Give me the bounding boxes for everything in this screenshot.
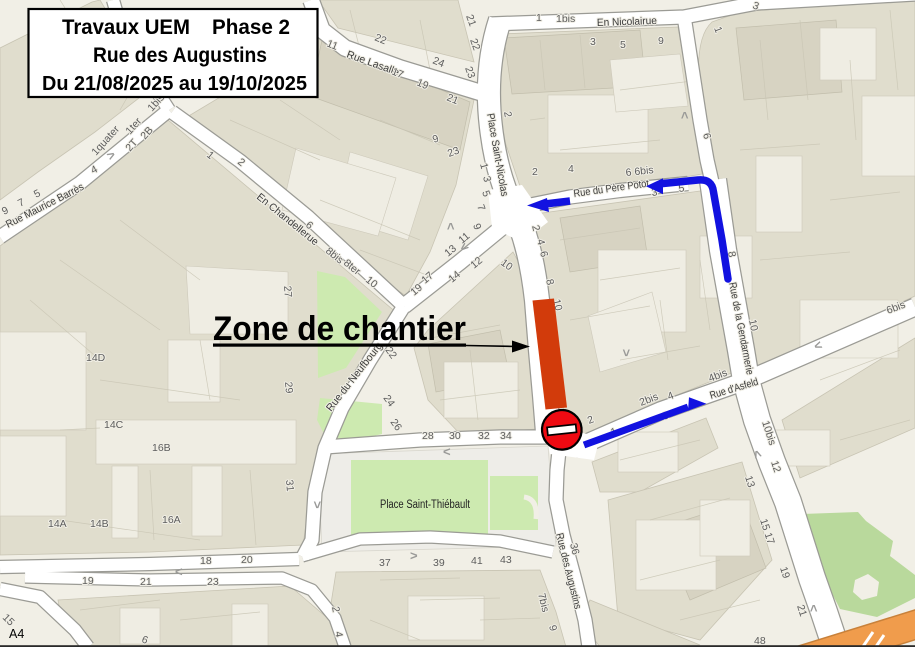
svg-text:30: 30 <box>449 430 461 442</box>
svg-text:27: 27 <box>281 285 294 298</box>
svg-text:37: 37 <box>379 557 391 569</box>
svg-text:14C: 14C <box>104 419 124 431</box>
svg-text:19: 19 <box>82 575 94 587</box>
svg-text:23: 23 <box>207 576 219 588</box>
svg-text:41: 41 <box>471 555 483 567</box>
svg-text:Travaux UEM: Travaux UEM <box>62 16 190 39</box>
svg-text:Zone de chantier: Zone de chantier <box>213 310 466 348</box>
svg-text:20: 20 <box>241 554 253 566</box>
svg-text:Du 21/08/2025 au 19/10/2025: Du 21/08/2025 au 19/10/2025 <box>42 72 307 95</box>
svg-text:16B: 16B <box>152 442 171 454</box>
svg-text:3: 3 <box>590 36 596 48</box>
svg-text:1bis: 1bis <box>556 13 575 25</box>
svg-text:31: 31 <box>283 479 296 492</box>
svg-text:18: 18 <box>200 555 212 567</box>
svg-text:<: < <box>443 444 451 459</box>
svg-text:En Nicolairue: En Nicolairue <box>597 15 658 29</box>
svg-text:14A: 14A <box>48 518 67 530</box>
svg-text:Phase 2: Phase 2 <box>212 16 290 39</box>
svg-text:>: > <box>410 548 418 563</box>
svg-text:16A: 16A <box>162 514 181 526</box>
svg-text:14B: 14B <box>90 518 109 530</box>
svg-text:9: 9 <box>658 35 664 47</box>
svg-text:29: 29 <box>282 381 295 394</box>
svg-text:14D: 14D <box>86 352 106 364</box>
svg-text:4: 4 <box>568 163 574 175</box>
svg-text:10: 10 <box>746 318 760 332</box>
svg-text:>: > <box>619 349 634 357</box>
svg-text:A4: A4 <box>9 627 24 641</box>
svg-text:43: 43 <box>500 554 512 566</box>
svg-text:>: > <box>443 222 458 230</box>
svg-text:2: 2 <box>532 166 538 178</box>
svg-text:<: < <box>175 564 183 579</box>
svg-text:34: 34 <box>500 430 512 442</box>
svg-text:21: 21 <box>140 576 152 588</box>
svg-text:Rue des Augustins: Rue des Augustins <box>93 44 267 67</box>
svg-text:32: 32 <box>478 430 490 442</box>
svg-text:28: 28 <box>422 430 434 442</box>
svg-text:>: > <box>677 111 692 119</box>
svg-text:1: 1 <box>536 12 542 24</box>
svg-text:Place Saint-Thiébault: Place Saint-Thiébault <box>380 499 471 511</box>
svg-text:5: 5 <box>620 39 626 51</box>
svg-text:>: > <box>310 501 325 509</box>
svg-text:39: 39 <box>433 557 445 569</box>
svg-text:>: > <box>806 604 821 612</box>
svg-text:48: 48 <box>754 635 766 647</box>
